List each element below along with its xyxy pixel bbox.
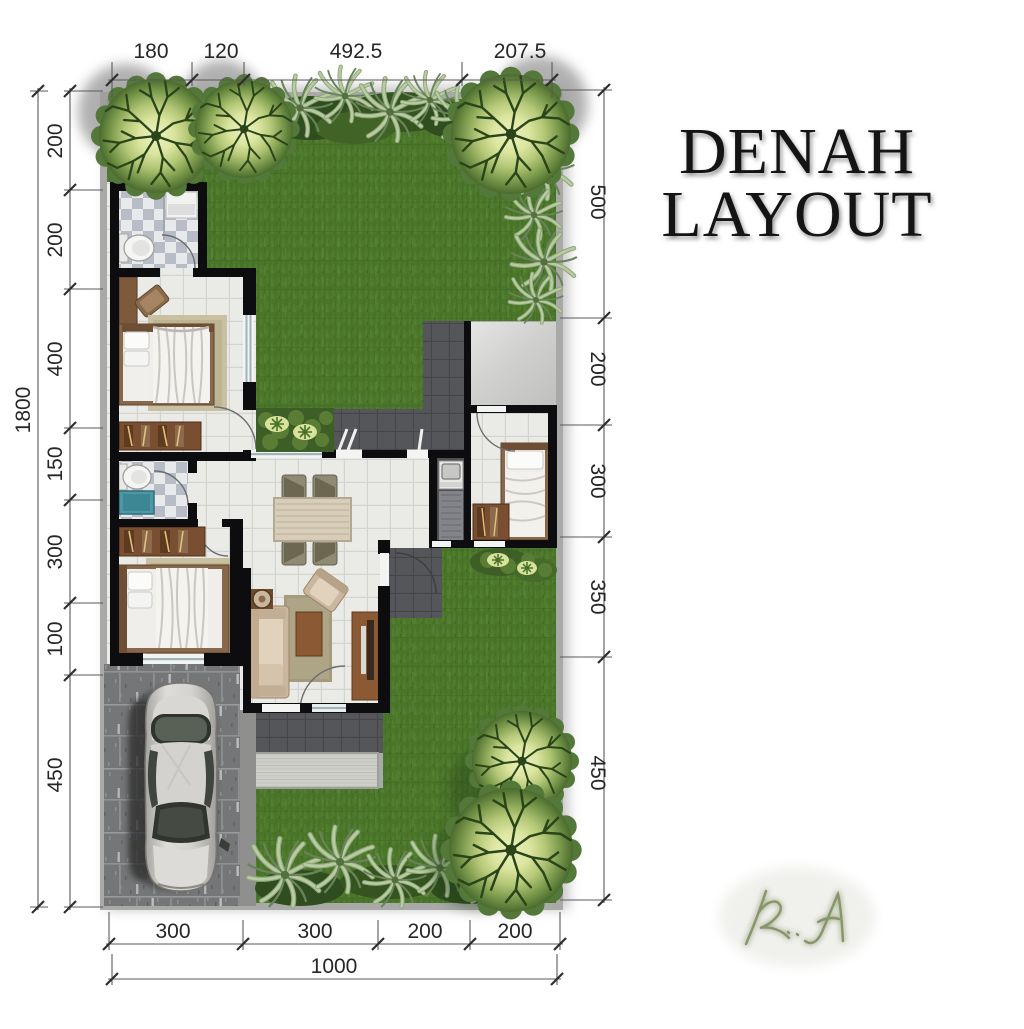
svg-text:200: 200 <box>586 351 609 386</box>
svg-text:450: 450 <box>586 755 609 790</box>
svg-text:180: 180 <box>133 40 168 63</box>
svg-text:300: 300 <box>586 463 609 498</box>
svg-text:120: 120 <box>203 40 238 63</box>
svg-text:300: 300 <box>155 920 190 943</box>
svg-text:400: 400 <box>44 341 67 376</box>
svg-text:300: 300 <box>44 534 67 569</box>
svg-text:200: 200 <box>407 920 442 943</box>
svg-text:350: 350 <box>586 579 609 614</box>
svg-text:500: 500 <box>586 184 609 219</box>
svg-text:200: 200 <box>44 222 67 257</box>
svg-text:207.5: 207.5 <box>494 40 547 63</box>
svg-text:1800: 1800 <box>12 387 35 434</box>
svg-text:300: 300 <box>297 920 332 943</box>
svg-text:492.5: 492.5 <box>330 40 383 63</box>
svg-text:150: 150 <box>44 446 67 481</box>
svg-text:200: 200 <box>44 123 67 158</box>
svg-text:200: 200 <box>497 920 532 943</box>
svg-text:LAYOUT: LAYOUT <box>661 178 932 251</box>
svg-text:100: 100 <box>44 621 67 656</box>
svg-text:450: 450 <box>44 757 67 792</box>
svg-text:1000: 1000 <box>311 955 358 978</box>
